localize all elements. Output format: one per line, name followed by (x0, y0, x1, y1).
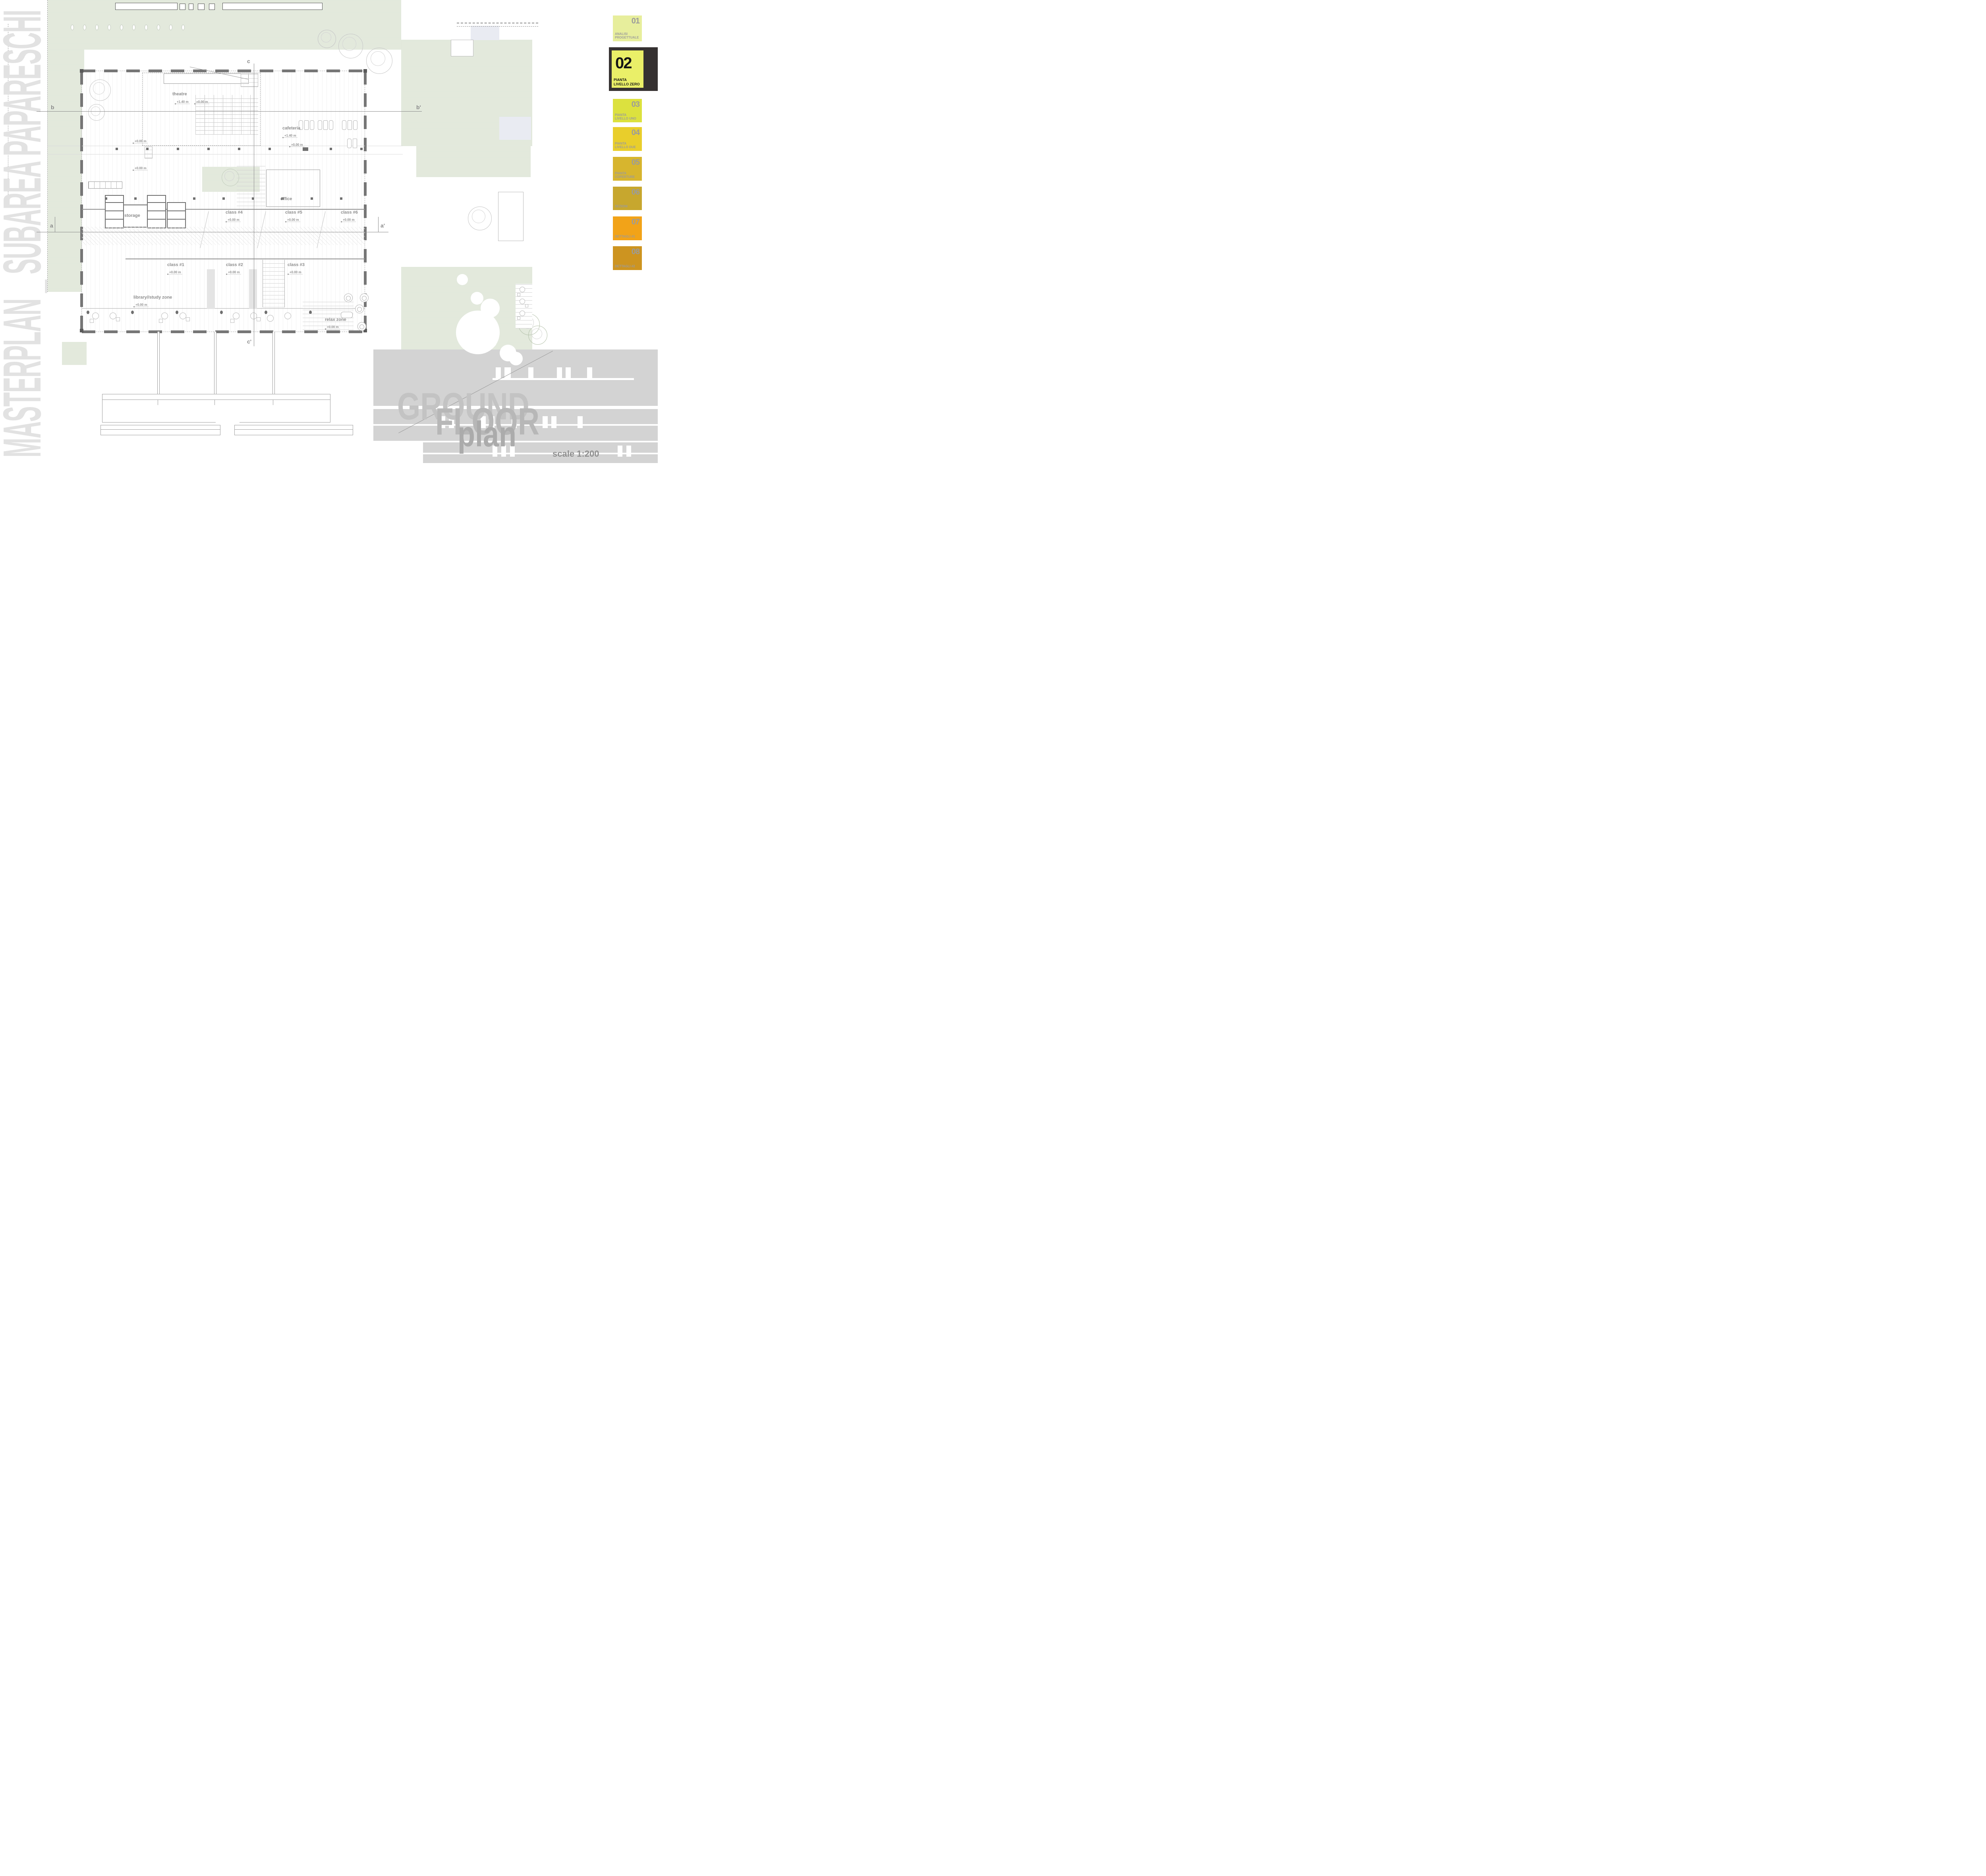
level-mark: +0.00 m (133, 303, 149, 307)
wall-west (80, 71, 83, 332)
tab-label: PIANTA LIVELLO ZERO (614, 78, 642, 87)
pergola-rail (234, 425, 353, 435)
tab-label: SEZIONI (615, 205, 639, 208)
section-marker: c (247, 58, 250, 64)
library-table (233, 313, 240, 319)
corridor-hatch (82, 227, 365, 245)
lawn-bottom-left-patch (62, 342, 87, 365)
cafeteria-tables (342, 120, 359, 130)
title-plan: plan (458, 420, 516, 449)
level-mark: +1.40 m (175, 100, 190, 104)
tree-icon (528, 326, 547, 345)
pergola-frame (102, 394, 330, 423)
section-line-c (254, 64, 254, 346)
interior-wall (126, 259, 365, 259)
tab-08-dettagli-2[interactable]: 08 DETTAGLI #2 (613, 246, 642, 270)
section-marker: b' (416, 104, 421, 110)
level-mark: +0.00 m (226, 218, 241, 222)
ramp (237, 163, 265, 206)
armchair (357, 322, 366, 331)
level-mark: +0.00 m (167, 270, 182, 274)
tab-label: DETTAGLI #1 (615, 235, 639, 239)
tree-icon (88, 104, 105, 121)
library-chair (257, 317, 261, 321)
tab-03-pianta-livello-uno[interactable]: 03 PIANTA LIVELLO UNO (613, 99, 642, 122)
library-chair (230, 319, 234, 323)
neighbour-footprint (499, 117, 531, 140)
pergola-stem (157, 332, 160, 394)
tab-number: 07 (632, 218, 639, 227)
tab-number: 08 (632, 247, 639, 257)
section-marker: c' (247, 338, 251, 345)
room-label: class #2 (226, 262, 243, 267)
wc-stalls (167, 202, 186, 228)
corridor-line (82, 146, 365, 146)
room-label: relax zone (325, 317, 346, 322)
section-line-b (37, 111, 422, 112)
pergola-stem (272, 332, 275, 394)
canopy-segment (180, 4, 185, 10)
cafe-chair (517, 317, 520, 320)
tree-icon (318, 30, 336, 48)
cafe-table (520, 299, 525, 304)
wc-stalls (105, 202, 124, 228)
tab-07-dettagli-1[interactable]: 07 DETTAGLI #1 (613, 216, 642, 240)
tree-icon (89, 79, 111, 101)
canopy-segment (198, 4, 205, 10)
tab-label: PIANTA LIVELLO DUE (615, 142, 639, 149)
neighbour-footprint (471, 26, 499, 40)
office-room (266, 170, 320, 207)
canopy-segment (222, 3, 323, 10)
library-table (110, 313, 116, 319)
section-line-a (37, 232, 388, 232)
tab-number: 04 (632, 128, 639, 137)
class-board (207, 269, 215, 309)
room-label: class #5 (285, 210, 302, 215)
room-label: theatre (172, 92, 187, 97)
wc-stall (105, 195, 124, 203)
stairs (241, 73, 258, 87)
tab-02-pianta-livello-zero-active[interactable]: 02 PIANTA LIVELLO ZERO (609, 47, 658, 91)
tab-label: DETTAGLI #2 (615, 264, 639, 268)
section-leader (55, 217, 55, 232)
wall-corner (363, 69, 367, 73)
armchair (355, 305, 364, 313)
library-table (161, 313, 168, 319)
lawn-clearing (509, 352, 523, 365)
lawn-clearing (456, 311, 500, 354)
wc-stalls (147, 202, 166, 228)
tab-04-pianta-livello-due[interactable]: 04 PIANTA LIVELLO DUE (613, 127, 642, 151)
level-mark: +0.00 m (226, 270, 241, 274)
wall-corner (80, 69, 83, 73)
cafeteria-tables (318, 120, 334, 130)
level-mark: +0.00 m (194, 100, 209, 104)
tab-01-analisi-progettuale[interactable]: 01 ANALISI PROGETTUALE (613, 15, 642, 41)
presentation-board: MASTERPLAN _ SUBAREA PAPARESCHI (0, 0, 658, 469)
level-mark: +0.00 m (288, 270, 303, 274)
wall-north (82, 69, 365, 72)
tree-icon (338, 34, 363, 58)
library-table (284, 313, 291, 319)
library-chair (159, 319, 163, 323)
room-label: cafeteria (282, 126, 300, 131)
cafe-chair (517, 293, 520, 296)
room-label: office (280, 197, 292, 201)
library-chair (90, 319, 94, 323)
room-label: class #4 (226, 210, 243, 215)
cafe-table (520, 287, 525, 292)
lawn-clearing (488, 338, 496, 347)
school-building-plan: theatre +1.40 m +0.00 m cafeteria +1.40 … (82, 71, 365, 332)
scale-label: scale 1:200 (553, 449, 599, 459)
library-chair (116, 317, 120, 321)
tab-number: 02 (615, 54, 632, 72)
dashed-line (457, 23, 538, 23)
level-mark: +0.00 m (133, 139, 148, 143)
section-marker: b (51, 104, 54, 110)
level-mark: +0.00 m (325, 325, 340, 329)
section-marker: a' (381, 222, 385, 229)
stage (164, 73, 249, 84)
canopy-segment (209, 4, 215, 10)
level-mark: +0.00 m (289, 143, 304, 147)
neighbour-building (451, 40, 473, 56)
tree-icon (468, 207, 492, 230)
cafe-chair (525, 304, 528, 307)
level-mark: +1.40 m (282, 134, 298, 138)
pergola-stem (214, 332, 216, 394)
level-mark: +0.00 m (133, 166, 148, 170)
tab-05-pianta-coperture[interactable]: 05 PIANTA COPERTURE (613, 157, 642, 181)
level-mark: +0.00 m (285, 218, 300, 222)
tab-number: 06 (632, 188, 639, 197)
class-board (249, 269, 257, 309)
room-label: class #1 (167, 262, 184, 267)
lawn-left-strip (48, 50, 84, 292)
tab-number: 05 (632, 158, 639, 167)
canopy-segment (189, 4, 193, 10)
tab-label: ANALISI PROGETTUALE (615, 32, 639, 40)
cafeteria-tables (347, 139, 358, 148)
armchair (344, 293, 353, 302)
stairs (263, 260, 285, 307)
tab-number: 01 (632, 17, 639, 26)
tab-number: 03 (632, 100, 639, 109)
room-label: library//study zone (133, 295, 172, 300)
room-label: class #6 (341, 210, 358, 215)
armchair (360, 293, 369, 302)
lawn-right-mid (416, 146, 531, 177)
lawn-clearing (457, 274, 468, 285)
tree-icon (366, 48, 392, 74)
tab-02-thumbnail: 02 PIANTA LIVELLO ZERO (612, 50, 643, 88)
tab-06-sezioni[interactable]: 06 SEZIONI (613, 187, 642, 210)
section-marker: a (50, 222, 53, 229)
tab-label: PIANTA COPERTURE (615, 172, 639, 179)
level-mark: +0.00 m (341, 218, 356, 222)
neighbour-building (498, 192, 524, 241)
canopy-segment (115, 3, 178, 10)
tree-icon (222, 169, 239, 186)
vertical-project-title: MASTERPLAN _ SUBAREA PAPARESCHI (2, 10, 42, 457)
pergola-rail (100, 425, 220, 435)
library-table (180, 313, 186, 319)
wall-corner (80, 329, 83, 332)
library-chair (186, 317, 190, 321)
wc-stall (147, 195, 166, 203)
cafeteria-tables (299, 120, 315, 130)
room-label: storage (124, 213, 140, 218)
dashed-line (457, 26, 538, 27)
library-table (267, 315, 274, 322)
wall-south (82, 330, 365, 333)
corridor-line (82, 154, 365, 154)
room-label: class #3 (288, 262, 305, 267)
library-table (92, 313, 99, 319)
lawn-clearing (471, 292, 483, 305)
wall-east (364, 71, 367, 332)
tab-label: PIANTA LIVELLO UNO (615, 113, 639, 121)
section-leader (378, 217, 379, 232)
kitchen-counter (88, 181, 122, 189)
stairs (145, 147, 153, 158)
cafe-table (520, 311, 525, 316)
